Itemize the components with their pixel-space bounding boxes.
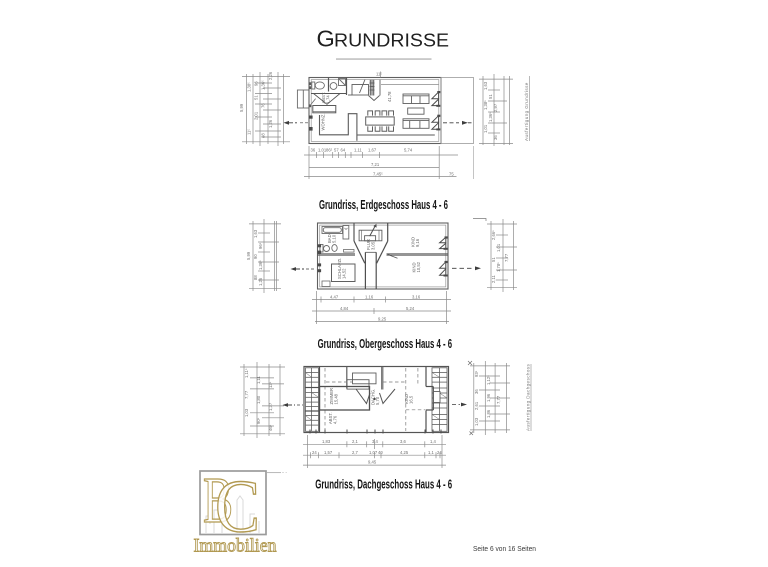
svg-text:24: 24 [312,450,317,455]
svg-text:1,11⁵: 1,11⁵ [244,368,249,378]
svg-text:1,26: 1,26 [268,119,273,128]
svg-text:1,03: 1,03 [244,408,249,417]
svg-text:7,77: 7,77 [504,253,509,262]
svg-text:88: 88 [261,133,266,138]
svg-text:75: 75 [449,172,454,177]
svg-text:1,37: 1,37 [268,402,273,411]
svg-text:36: 36 [311,148,316,153]
svg-text:1,11: 1,11 [354,148,363,153]
svg-text:57: 57 [334,148,339,153]
svg-text:2,97: 2,97 [493,103,498,112]
svg-text:BAD 5,10: BAD 5,10 [327,233,337,243]
svg-text:G: G [317,26,335,52]
svg-text:1,86: 1,86 [486,409,491,418]
svg-text:1,63: 1,63 [253,229,258,238]
svg-text:1,03: 1,03 [474,417,479,426]
svg-text:24: 24 [437,450,442,455]
svg-text:5,99: 5,99 [239,103,244,112]
svg-text:1,38⁵: 1,38⁵ [247,82,252,92]
svg-text:Grundriss, Dachgeschoss Haus 4: Grundriss, Dachgeschoss Haus 4 - 6 [315,477,452,492]
svg-text:2,61: 2,61 [474,401,479,410]
svg-text:76: 76 [261,103,266,108]
svg-text:3,4: 3,4 [372,439,378,444]
svg-text:51: 51 [491,257,496,262]
svg-text:1,01: 1,01 [483,124,488,133]
svg-text:Seite 6 von 16 Seiten: Seite 6 von 16 Seiten [473,544,536,553]
svg-text:WOHNZ.: WOHNZ. [321,114,326,131]
svg-text:36: 36 [493,135,498,140]
svg-text:11⁵: 11⁵ [376,72,382,77]
svg-text:51: 51 [488,94,493,99]
svg-text:5,74: 5,74 [404,148,413,153]
svg-text:2,11: 2,11 [491,274,496,283]
svg-text:ZIMMER 15,48: ZIMMER 15,48 [329,387,339,405]
svg-text:9,25: 9,25 [378,317,387,322]
svg-text:Ausfertigung Dachgeschoss: Ausfertigung Dachgeschoss [526,363,531,431]
svg-text:1,26: 1,26 [258,277,263,286]
svg-text:11⁵: 11⁵ [247,129,252,135]
svg-text:4,84: 4,84 [340,306,349,311]
svg-text:2,01: 2,01 [254,111,259,120]
svg-text:DACHG. 5,70: DACHG. 5,70 [371,388,381,405]
svg-text:7,21: 7,21 [371,162,380,167]
svg-text:64: 64 [341,148,346,153]
svg-text:RUNDRISSE: RUNDRISSE [334,31,449,51]
svg-text:KIND 9,16: KIND 9,16 [411,236,421,247]
svg-text:KIND 16,5: KIND 16,5 [404,393,414,404]
svg-text:7,45⁵: 7,45⁵ [373,172,383,177]
svg-text:1,36⁵: 1,36⁵ [261,80,266,90]
svg-text:SCHLAFZI. 14,52: SCHLAFZI. 14,52 [337,256,347,279]
svg-text:2,1: 2,1 [352,439,358,444]
svg-text:1,78⁵: 1,78⁵ [496,262,501,272]
svg-text:2,7: 2,7 [352,450,358,455]
svg-text:1,38⁵: 1,38⁵ [483,100,488,110]
svg-text:40: 40 [378,450,383,455]
svg-text:41,78: 41,78 [387,91,392,102]
svg-text:1,57: 1,57 [324,450,333,455]
svg-text:1,4: 1,4 [430,439,436,444]
svg-text:1,36⁵: 1,36⁵ [488,112,493,122]
svg-text:4,47: 4,47 [330,295,339,300]
svg-text:9,45: 9,45 [368,460,377,465]
svg-text:2,66⁵: 2,66⁵ [491,230,496,240]
svg-text:46⁵: 46⁵ [268,424,273,431]
svg-text:1,07: 1,07 [369,450,378,455]
svg-text:1,80: 1,80 [256,395,261,404]
svg-text:3,16: 3,16 [412,295,421,300]
svg-text:36: 36 [474,389,479,394]
svg-text:Grundriss, Erdgeschoss Haus 4: Grundriss, Erdgeschoss Haus 4 - 6 [319,197,448,212]
svg-text:7,77: 7,77 [496,395,501,404]
svg-text:ABST. 1,74: ABST. 1,74 [321,91,331,104]
svg-text:86⁵: 86⁵ [326,148,333,153]
svg-text:Immobilien: Immobilien [194,536,277,557]
svg-text:90: 90 [253,254,258,259]
svg-text:93⁵: 93⁵ [474,370,479,377]
svg-text:1,63: 1,63 [483,81,488,90]
svg-text:2,26: 2,26 [268,71,273,80]
svg-text:13⁵: 13⁵ [268,381,273,388]
svg-text:1,96: 1,96 [486,393,491,402]
svg-text:51: 51 [254,95,259,100]
svg-text:1,11: 1,11 [256,375,261,384]
svg-text:FLUR 3,05: FLUR 3,05 [366,238,376,250]
svg-text:1,36⁵: 1,36⁵ [258,260,263,270]
svg-text:ABST. 4,76: ABST. 4,76 [328,411,338,424]
svg-text:96⁵: 96⁵ [258,242,263,249]
svg-text:3,6: 3,6 [400,439,406,444]
svg-text:1,16: 1,16 [365,295,374,300]
svg-text:Grundriss, Obergeschoss Haus 4: Grundriss, Obergeschoss Haus 4 - 6 [318,336,453,351]
svg-text:1,01: 1,01 [496,243,501,252]
svg-text:1,83: 1,83 [322,439,331,444]
svg-text:KIND 10,52: KIND 10,52 [412,261,422,272]
svg-text:96: 96 [254,81,259,86]
svg-text:Ausfertigung Grundrisse: Ausfertigung Grundrisse [524,82,529,141]
svg-text:5,99: 5,99 [246,251,251,260]
svg-text:5,24: 5,24 [406,306,415,311]
svg-text:90⁵: 90⁵ [256,417,261,424]
svg-text:1,67: 1,67 [368,148,377,153]
svg-text:4,25: 4,25 [400,450,409,455]
svg-text:7,77: 7,77 [244,390,249,399]
svg-text:1,1: 1,1 [428,450,434,455]
svg-text:1,12⁵: 1,12⁵ [486,375,491,385]
